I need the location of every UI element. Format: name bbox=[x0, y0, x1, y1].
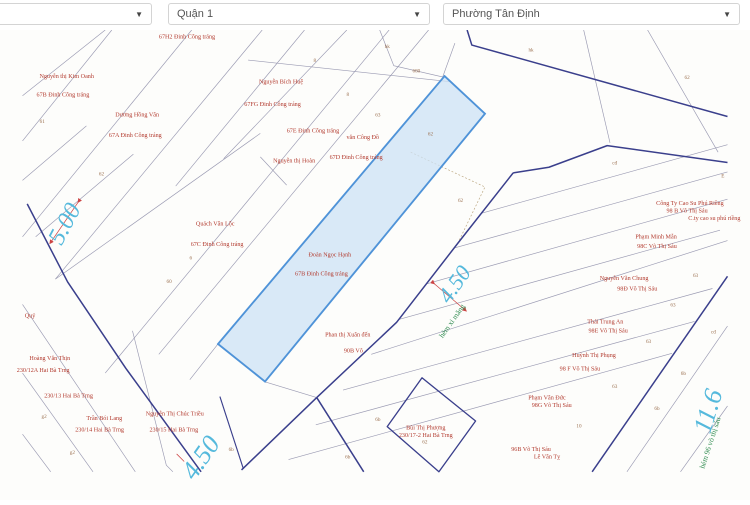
parcel-number: 6b bbox=[654, 406, 660, 412]
owner-label: 96B Võ Thị Sáu bbox=[511, 447, 551, 453]
road-boundary-lines bbox=[27, 30, 727, 472]
owner-label: Quách Văn Lộc bbox=[196, 222, 235, 228]
owner-label: 230/17-2 Hai Bà Trng bbox=[399, 433, 453, 439]
parcel-number: 63 bbox=[670, 302, 676, 308]
owner-label: Nguyễn thị Hoàn bbox=[273, 158, 315, 165]
parcel-number: 680 bbox=[412, 68, 420, 74]
owner-labels-layer: 67H2 Đinh Công trángNguyễn thị Kim Oanh6… bbox=[17, 34, 741, 460]
parcel-number: g2 bbox=[70, 450, 76, 456]
owner-label: 67D Đinh Công tráng bbox=[330, 155, 383, 161]
owner-label: Huỳnh Thị Phụng bbox=[572, 353, 616, 359]
parcel-number: hk bbox=[385, 44, 391, 50]
owner-label: 67B Đinh Công tráng bbox=[295, 271, 348, 277]
owner-label: 67A Đinh Công tráng bbox=[109, 133, 162, 139]
parcel-number: 62 bbox=[685, 75, 691, 81]
owner-label: 230/12A Hai Bà Trng bbox=[17, 368, 70, 374]
parcel-number: 6b bbox=[681, 371, 687, 377]
owner-label: 67E Đinh Công tráng bbox=[287, 128, 339, 134]
location-toolbar: ▼ Quận 1 ▼ Phường Tân Định ▼ bbox=[0, 0, 750, 30]
parcel-number: 10 bbox=[576, 424, 582, 430]
owner-label: Trần Bói Lang bbox=[86, 415, 122, 422]
parcel-number: E bbox=[721, 174, 724, 180]
parcel-number: 8 bbox=[314, 58, 317, 64]
parcel-number-layer: 61628863hk6806266062hk62cđE636363cđ6b631… bbox=[40, 44, 725, 461]
parcel-boundary-lines bbox=[23, 30, 728, 472]
owner-label: Phạm Văn Đức bbox=[528, 395, 566, 401]
owner-label: Đoàn Ngọc Hạnh bbox=[308, 253, 351, 259]
owner-label: Phan thị Xuân đến bbox=[325, 331, 370, 338]
owner-label: Nguyễn Văn Chung bbox=[600, 275, 649, 282]
owner-label: Nguyễn Thị Chúc Triều bbox=[146, 410, 204, 417]
cadastral-map[interactable]: 67H2 Đinh Công trángNguyễn thị Kim Oanh6… bbox=[0, 30, 750, 500]
owner-label: Nguyễn Bích Huệ bbox=[259, 79, 303, 86]
dimension-labels-layer: 5.004.504.5011.6 bbox=[43, 199, 729, 485]
owner-label: 98 F Võ Thị Sáu bbox=[560, 366, 601, 372]
owner-label: 67H2 Đinh Công tráng bbox=[159, 34, 215, 40]
parcel-number: 6b bbox=[229, 447, 235, 453]
owner-label: 90B Võ bbox=[344, 348, 363, 354]
parcel-number: 6b bbox=[375, 417, 381, 423]
owner-label: 67C Đinh Công tráng bbox=[191, 242, 244, 248]
owner-label: C.ty cao su phú riềng bbox=[688, 215, 740, 222]
parcel-number: 63 bbox=[375, 112, 381, 118]
owner-label: Phạm Minh Mẫn bbox=[635, 234, 676, 241]
ward-select[interactable]: Phường Tân Định ▼ bbox=[443, 3, 740, 25]
owner-label: Thái Trung An bbox=[587, 319, 623, 325]
parcel-number: 6b bbox=[345, 455, 351, 461]
parcel-number: 63 bbox=[646, 339, 652, 345]
owner-label: Công Ty Cao Su Phú Riềng bbox=[656, 200, 724, 207]
parcel-number: 62 bbox=[428, 131, 434, 137]
parcel-number: 62 bbox=[422, 440, 428, 446]
parcel-number: 63 bbox=[693, 273, 699, 279]
owner-label: 98C Võ Thị Sáu bbox=[637, 244, 677, 250]
owner-label: 98E Võ Thị Sáu bbox=[588, 329, 627, 335]
owner-label: 98 B Võ Thị Sáu bbox=[666, 208, 707, 214]
parcel-number: 60 bbox=[167, 279, 173, 285]
street-name-layer: hẻm xi mănghẻm 96 võ thị sáu bbox=[437, 302, 723, 470]
owner-label: 98G Võ Thị Sáu bbox=[532, 403, 572, 409]
owner-label: 67B Đinh Công tráng bbox=[37, 93, 90, 99]
district-select[interactable]: Quận 1 ▼ bbox=[168, 3, 430, 25]
owner-label: Hoàng Văn Thịn bbox=[29, 356, 70, 362]
owner-label: 67FG Đinh Công tráng bbox=[244, 102, 301, 108]
district-select-value: Quận 1 bbox=[177, 8, 407, 20]
chevron-down-icon: ▼ bbox=[413, 10, 421, 19]
owner-label: Lê Văn Tỵ bbox=[534, 455, 561, 461]
chevron-down-icon: ▼ bbox=[723, 10, 731, 19]
owner-label: 98Đ Võ Thị Sáu bbox=[617, 286, 657, 292]
parcel-number: 62 bbox=[99, 172, 105, 178]
parcel-number: 6 bbox=[189, 255, 192, 261]
chevron-down-icon: ▼ bbox=[135, 10, 143, 19]
owner-label: Bùi Thị Phượng bbox=[406, 426, 445, 432]
owner-label: 230/15 Hai Bà Trng bbox=[149, 427, 198, 433]
owner-label: Quý bbox=[25, 314, 36, 320]
parcel-number: g2 bbox=[42, 414, 48, 420]
parcel-number: hk bbox=[528, 48, 534, 54]
owner-label: văn Công Đồ bbox=[346, 134, 379, 141]
dimension-label: 5.00 bbox=[43, 199, 87, 249]
parcel-number: cđ bbox=[612, 160, 617, 166]
parcel-number: 8 bbox=[346, 92, 349, 98]
owner-label: 230/13 Hai Bà Trng bbox=[44, 394, 93, 400]
province-select[interactable]: ▼ bbox=[0, 3, 152, 25]
owner-label: Dương Hồng Vân bbox=[115, 111, 159, 118]
dimension-label: 4.50 bbox=[176, 430, 226, 484]
dimension-label: 11.6 bbox=[688, 385, 729, 436]
cadastral-map-canvas[interactable]: 67H2 Đinh Công trángNguyễn thị Kim Oanh6… bbox=[0, 30, 750, 500]
parcel-number: 63 bbox=[612, 384, 618, 390]
ward-select-value: Phường Tân Định bbox=[452, 8, 717, 20]
owner-label: 230/14 Hai Bà Trng bbox=[75, 427, 124, 433]
owner-label: Nguyễn thị Kim Oanh bbox=[39, 73, 93, 80]
parcel-number: 61 bbox=[40, 119, 46, 125]
parcel-number: 62 bbox=[458, 198, 464, 204]
parcel-number: cđ bbox=[711, 330, 716, 336]
